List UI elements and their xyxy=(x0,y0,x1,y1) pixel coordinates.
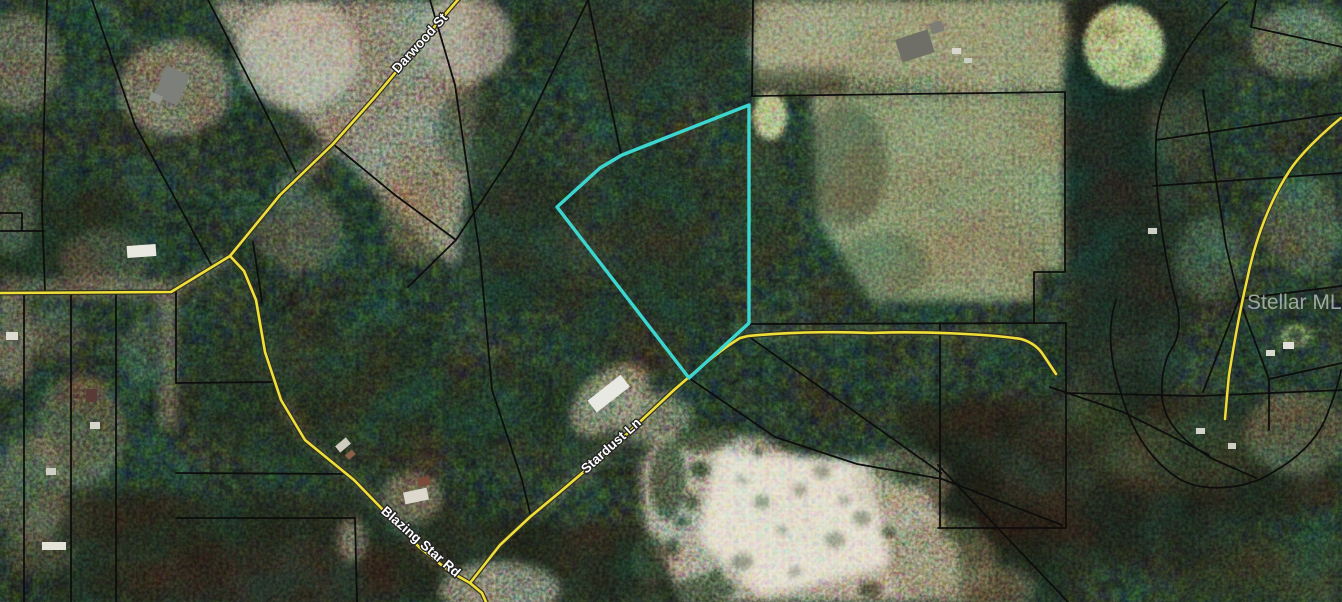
svg-text:Stellar MLS: Stellar MLS xyxy=(1247,291,1342,314)
